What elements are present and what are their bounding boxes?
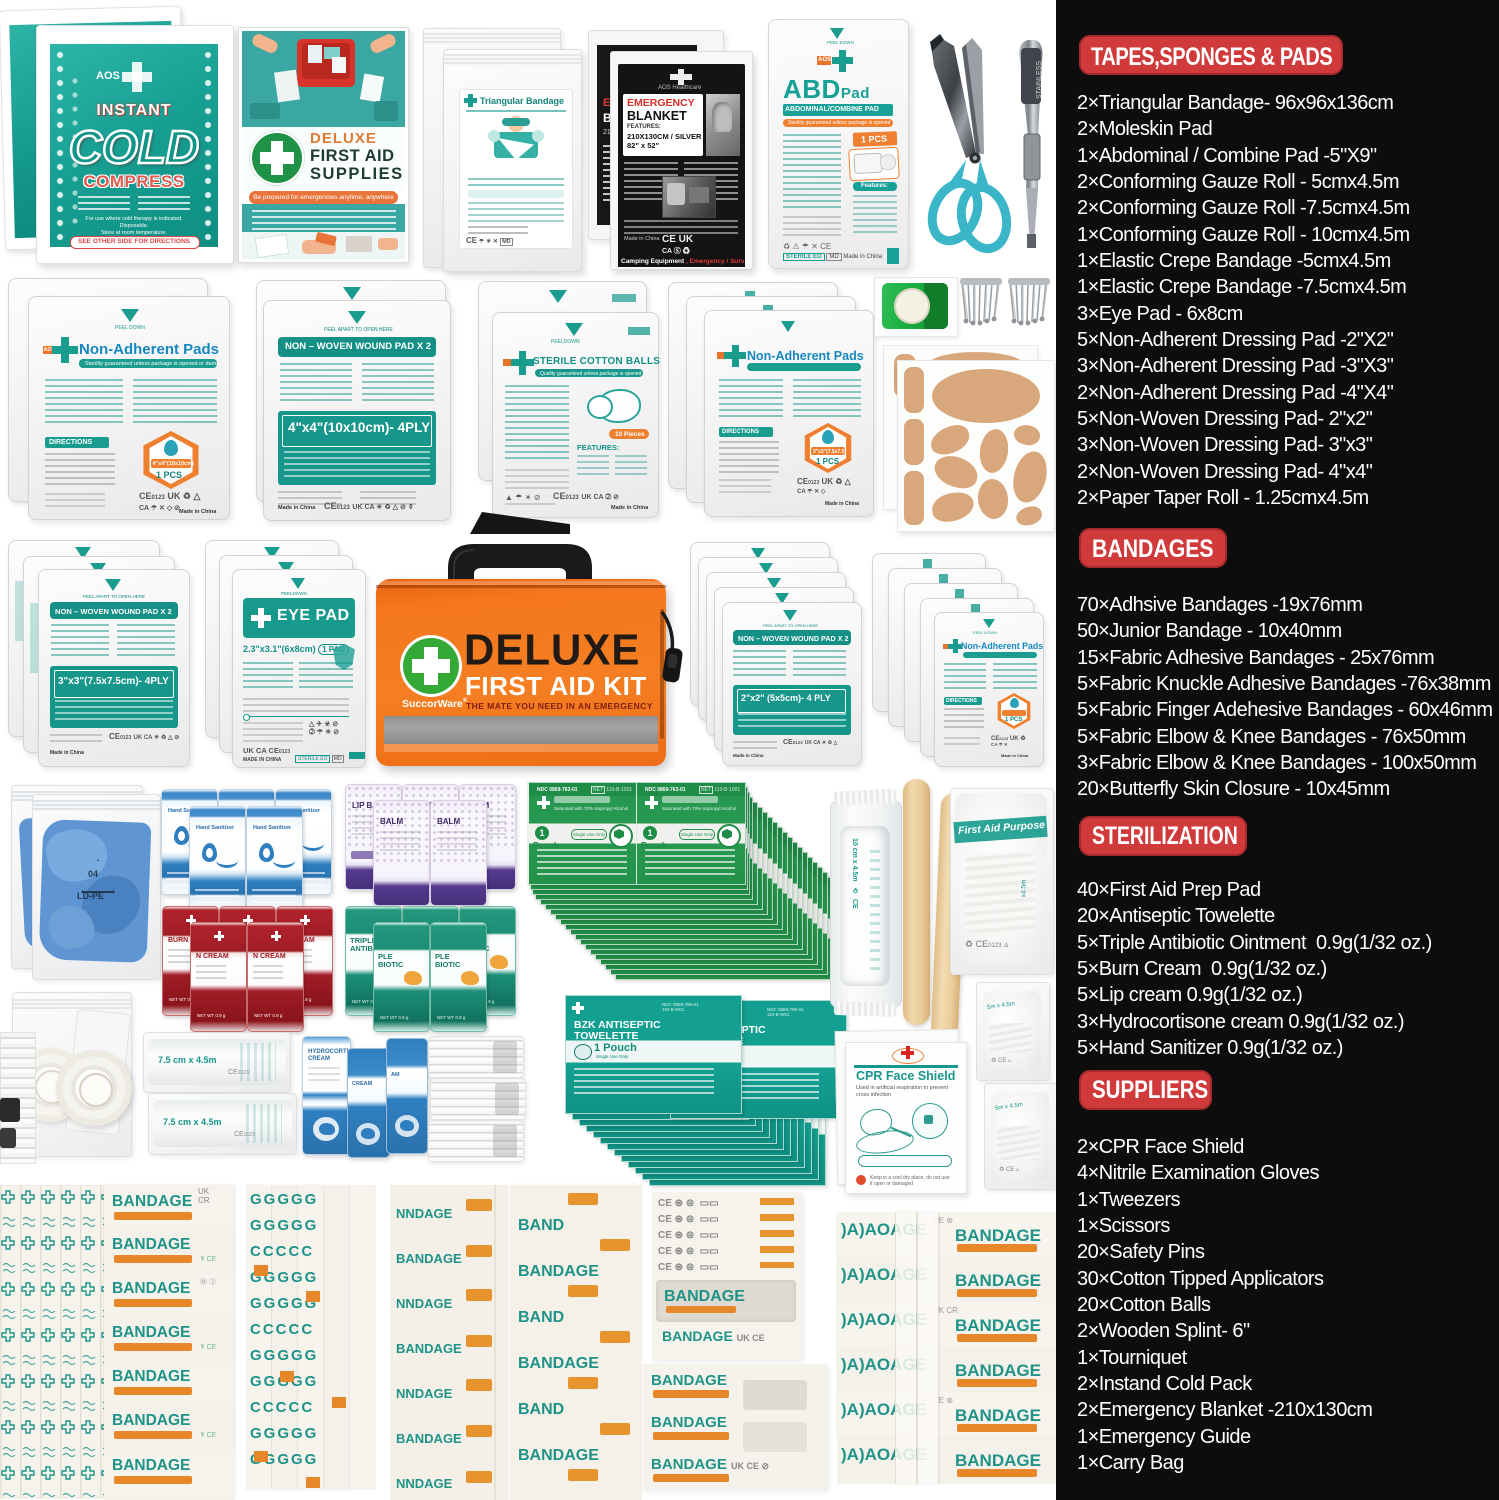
svg-text:STAINLESS: STAINLESS (1036, 61, 1043, 99)
